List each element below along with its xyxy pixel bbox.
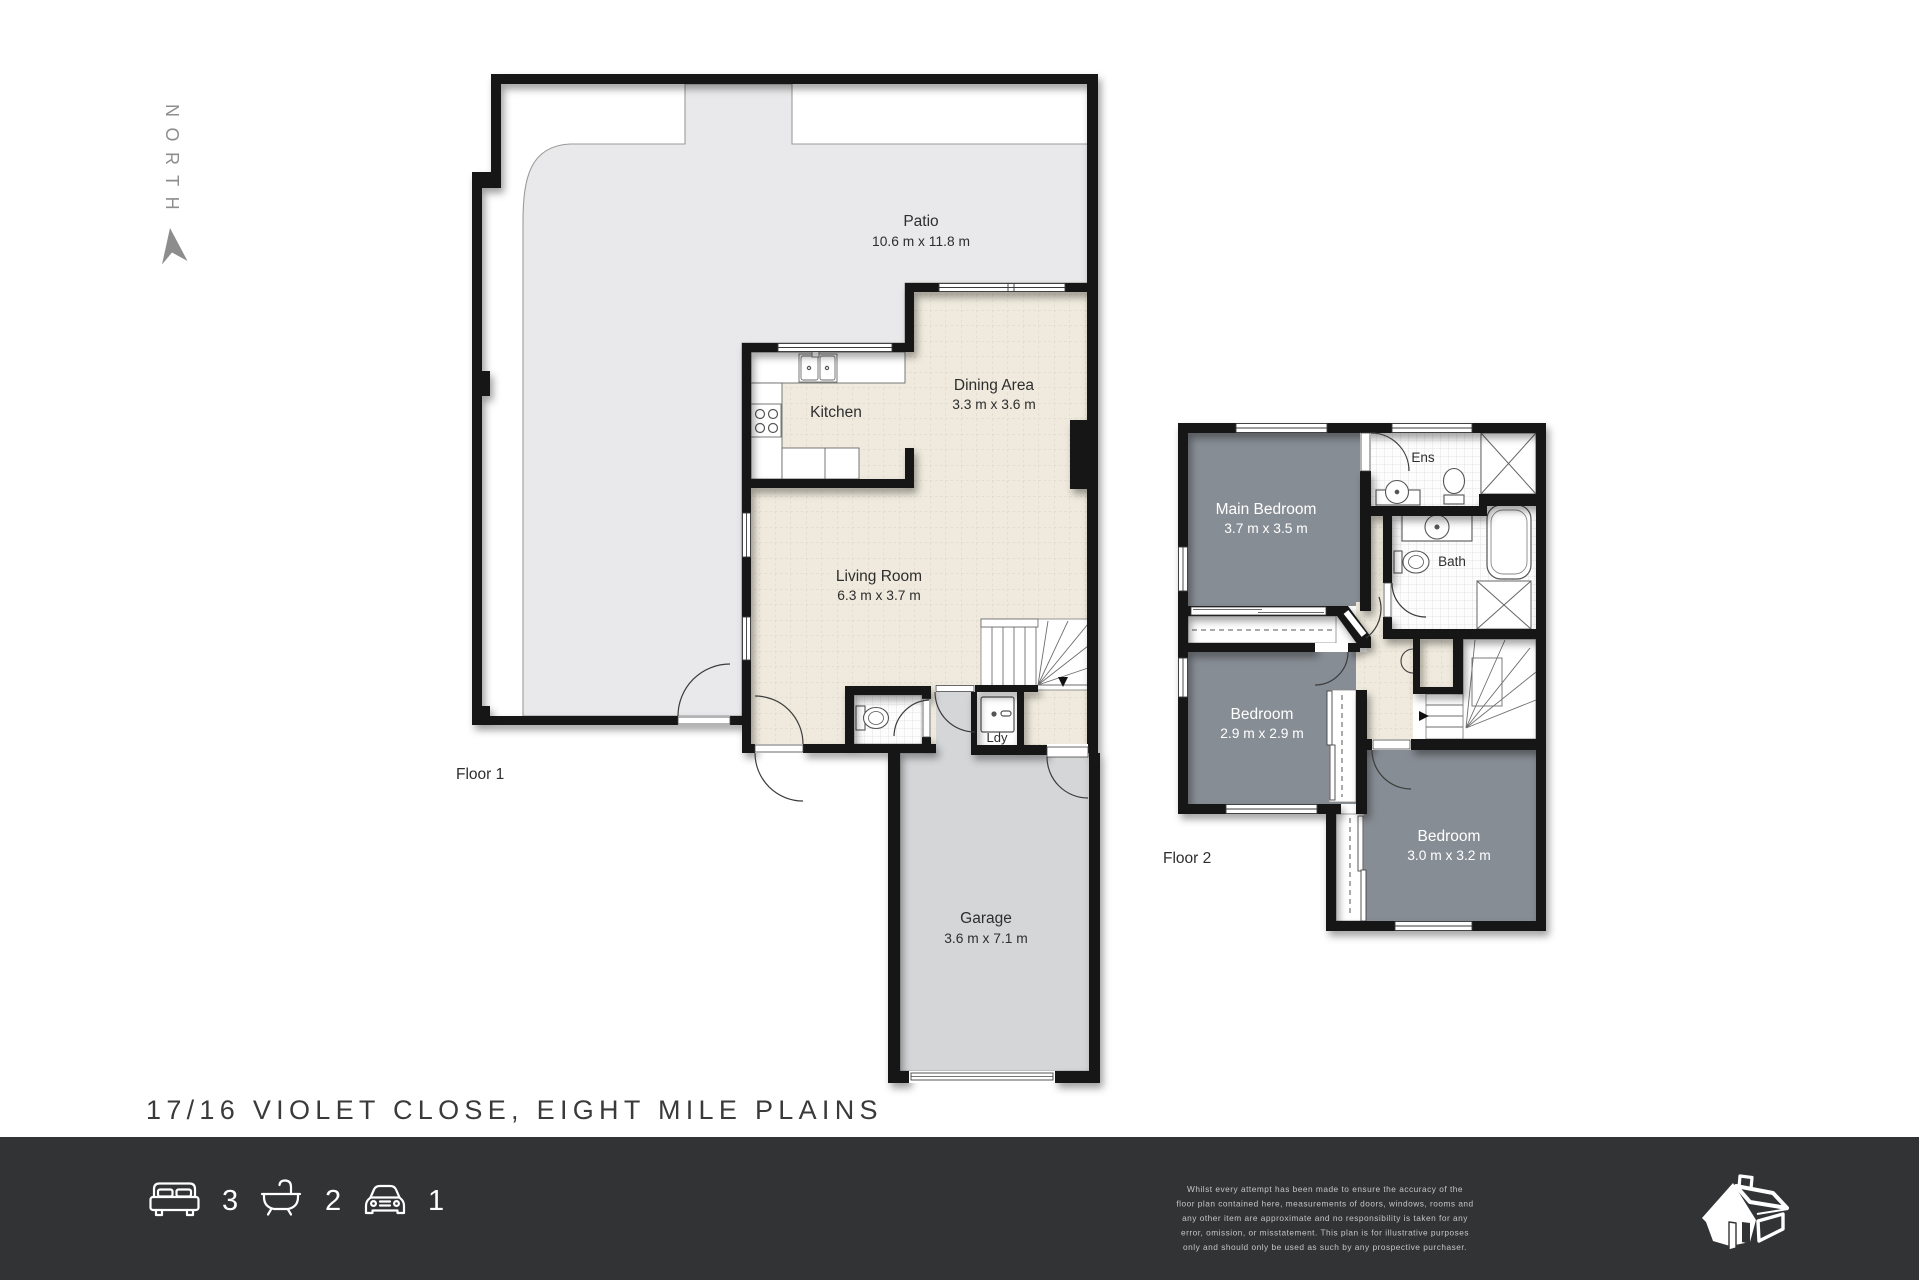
svg-text:17/16 VIOLET CLOSE, EIGHT MILE: 17/16 VIOLET CLOSE, EIGHT MILE PLAINS <box>146 1095 883 1125</box>
svg-text:Garage: Garage <box>960 910 1012 927</box>
svg-text:Bedroom: Bedroom <box>1418 828 1481 845</box>
svg-text:3.7 m x 3.5 m: 3.7 m x 3.5 m <box>1224 521 1308 536</box>
svg-text:3.3 m x 3.6 m: 3.3 m x 3.6 m <box>952 397 1036 412</box>
svg-text:only and should only be used a: only and should only be used as such by … <box>1183 1242 1467 1252</box>
svg-text:Bedroom: Bedroom <box>1231 706 1294 723</box>
svg-text:6.3 m x 3.7 m: 6.3 m x 3.7 m <box>837 588 921 603</box>
svg-text:Patio: Patio <box>903 213 938 230</box>
svg-text:Floor 2: Floor 2 <box>1163 850 1211 867</box>
svg-text:any other item are approximate: any other item are approximate and no re… <box>1182 1213 1468 1223</box>
svg-text:10.6 m x 11.8 m: 10.6 m x 11.8 m <box>872 234 970 249</box>
svg-text:Ens: Ens <box>1411 450 1435 465</box>
svg-text:2: 2 <box>325 1185 341 1217</box>
svg-text:Floor 1: Floor 1 <box>456 766 504 783</box>
svg-text:Whilst every attempt has been: Whilst every attempt has been made to en… <box>1187 1184 1463 1194</box>
svg-text:Bath: Bath <box>1438 554 1466 569</box>
svg-text:3.0 m x 3.2 m: 3.0 m x 3.2 m <box>1407 848 1491 863</box>
svg-text:Kitchen: Kitchen <box>810 404 862 421</box>
svg-text:2.9 m x 2.9 m: 2.9 m x 2.9 m <box>1220 726 1304 741</box>
svg-text:error, omission, or misstateme: error, omission, or misstatement. This p… <box>1181 1228 1469 1238</box>
svg-text:NORTH: NORTH <box>162 104 182 220</box>
svg-text:Living Room: Living Room <box>836 568 922 585</box>
svg-text:floor plan contained here, mea: floor plan contained here, measurements … <box>1176 1199 1473 1209</box>
svg-text:Dining Area: Dining Area <box>954 377 1035 394</box>
svg-text:Main Bedroom: Main Bedroom <box>1216 501 1317 518</box>
svg-text:Ldy: Ldy <box>987 730 1008 745</box>
svg-text:3.6 m x 7.1 m: 3.6 m x 7.1 m <box>944 931 1028 946</box>
svg-text:1: 1 <box>428 1185 444 1217</box>
svg-text:3: 3 <box>222 1185 238 1217</box>
